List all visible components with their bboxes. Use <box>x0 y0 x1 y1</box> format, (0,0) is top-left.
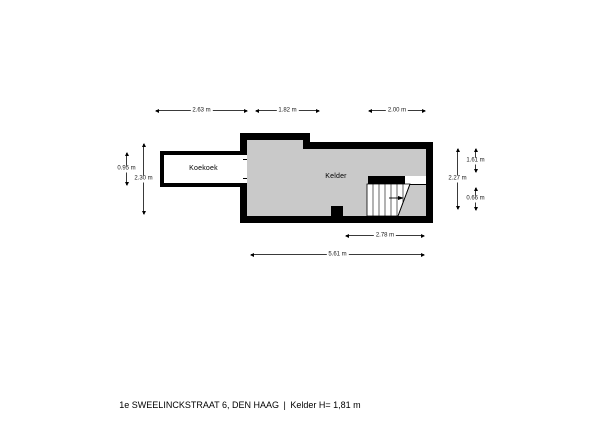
dimension-label: 2.63 m <box>190 107 212 114</box>
dimension-right-inner: 2.27 m <box>455 148 460 210</box>
floor-plan-canvas: Koekoek Kelder 2.63 m 1.82 m 2.00 m 0.95… <box>0 0 600 424</box>
stair-header-opening <box>405 176 426 184</box>
footer-separator: | <box>283 400 287 410</box>
dimension-right-outer-top: 1.61 m <box>473 148 478 173</box>
dimension-left-outer: 0.95 m <box>124 152 129 186</box>
bottom-wall-pier <box>331 206 343 216</box>
footer-caption: 1e SWEELINCKSTRAAT 6, DEN HAAG | Kelder … <box>0 400 480 411</box>
dimension-bottom-inner: 2.78 m <box>345 233 425 238</box>
window-tick <box>243 159 247 160</box>
dimension-label: 2.27 m <box>446 176 468 183</box>
dimension-label: 1.61 m <box>464 157 486 164</box>
stair-header-wall <box>368 176 405 184</box>
room-label-koekoek: Koekoek <box>164 165 243 173</box>
dimension-label: 1.82 m <box>276 107 298 114</box>
room-label-kelder: Kelder <box>306 173 366 181</box>
footer-level-info: Kelder H= 1,81 m <box>289 400 361 410</box>
dimension-left-inner: 2.30 m <box>141 143 146 215</box>
dimension-label: 2.78 m <box>374 232 396 239</box>
kelder-floor-notch <box>247 140 303 216</box>
dimension-label: 0.66 m <box>464 196 486 203</box>
dimension-label: 0.95 m <box>115 166 137 173</box>
dimension-top-right: 2.00 m <box>368 108 426 113</box>
dimension-label: 2.00 m <box>386 107 408 114</box>
stairs <box>364 176 428 216</box>
dimension-top-middle: 1.82 m <box>255 108 320 113</box>
dimension-top-left: 2.63 m <box>155 108 248 113</box>
koekoek-window-opening <box>243 155 247 183</box>
footer-address: 1e SWEELINCKSTRAAT 6, DEN HAAG <box>118 400 280 410</box>
dimension-label: 2.30 m <box>132 176 154 183</box>
dimension-right-outer-bottom: 0.66 m <box>473 187 478 211</box>
dimension-bottom-outer: 5.61 m <box>250 252 425 257</box>
window-tick <box>243 178 247 179</box>
dimension-label: 5.61 m <box>326 251 348 258</box>
